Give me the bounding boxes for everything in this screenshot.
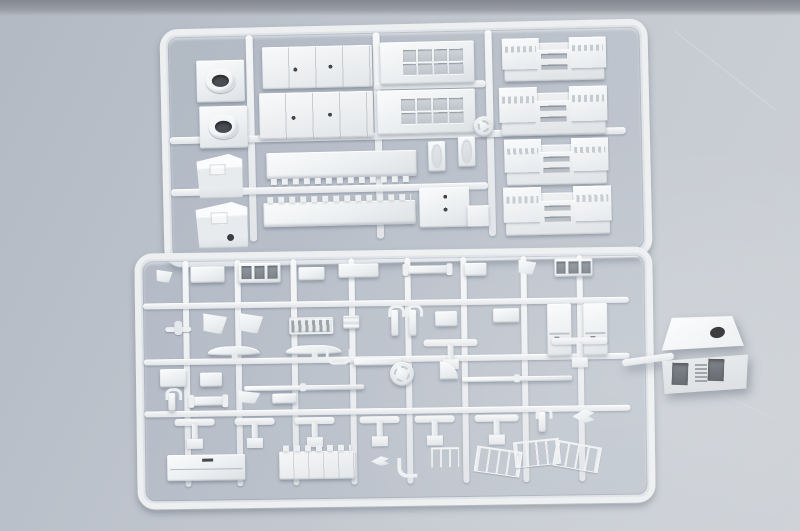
surface-scratch xyxy=(673,30,776,111)
bridge-deck-1-wr xyxy=(569,36,607,68)
deck-fitting xyxy=(190,396,226,406)
funnel-cap-1 xyxy=(196,60,245,103)
window-frame-a xyxy=(238,263,280,284)
hatch-frame-2 xyxy=(458,136,476,166)
mast-tee-2 xyxy=(551,337,607,368)
panel-slab-1 xyxy=(262,45,373,89)
deck-crenellated xyxy=(279,451,355,480)
platform-small-2 xyxy=(493,308,519,322)
pad-box-1 xyxy=(160,369,186,387)
sprue-bottom xyxy=(134,246,656,509)
pad-box-2 xyxy=(200,372,222,386)
bridge-deck-4-wr xyxy=(573,185,612,220)
bridge-deck-2-wl xyxy=(499,87,538,122)
mast-tee-7 xyxy=(415,415,455,446)
photo-scene xyxy=(0,0,800,531)
mast-tee-4-t-pad xyxy=(247,438,263,448)
notched-deck-2 xyxy=(263,200,416,227)
surface-top-edge xyxy=(0,0,800,16)
davit-1 xyxy=(391,310,398,336)
bridge-deck-1-mid xyxy=(537,49,572,78)
mast-tee-6 xyxy=(360,416,400,447)
float-plane xyxy=(165,321,191,335)
bridge-deck-3-wr xyxy=(571,138,609,172)
bridge-deck-2-wr xyxy=(568,86,607,121)
bridge-deck-4 xyxy=(505,191,610,235)
mast-tee-6-t-stem xyxy=(377,421,383,436)
bar-with-caps xyxy=(404,265,450,274)
mast-tee-7-t-stem xyxy=(432,420,438,435)
sprue-top xyxy=(159,18,652,267)
box-small-1 xyxy=(298,267,324,280)
bridge-deck-2-mid xyxy=(535,100,571,132)
bollard-pair xyxy=(272,393,296,403)
fitting-small-2 xyxy=(538,412,545,432)
notched-deck-1 xyxy=(266,150,417,179)
bridge-deck-1 xyxy=(504,41,605,81)
mast-tee-5 xyxy=(295,417,335,448)
pipe-bend xyxy=(397,458,417,478)
bridge-deck-1-wl xyxy=(502,38,540,70)
window-block-2 xyxy=(377,88,476,134)
yardarm-curved-1 xyxy=(208,346,260,356)
bridge-deck-2 xyxy=(501,91,606,135)
mast-tee-3-t-pad xyxy=(187,439,203,449)
mast-tee-7-t-pad xyxy=(427,435,443,445)
window-frame-b-cells xyxy=(557,261,591,273)
deck-plain xyxy=(167,454,245,481)
box-small-3 xyxy=(435,311,457,326)
rail-small xyxy=(431,447,459,467)
mast-tee-3 xyxy=(175,419,215,450)
cube-hatch-window xyxy=(708,359,725,382)
bridge-deck-3-wl xyxy=(504,139,542,173)
mast-tee-4 xyxy=(235,418,275,449)
mast-tee-5-t-stem xyxy=(312,422,318,437)
l-shaped-block xyxy=(419,187,470,228)
platform-small-1 xyxy=(190,266,224,282)
vent-grille xyxy=(289,317,333,335)
mast-tee-2-t-stem xyxy=(577,342,583,357)
grate-small xyxy=(343,315,359,328)
bridge-deck-3-mid xyxy=(539,151,574,181)
window-frame-a-cells xyxy=(241,266,278,280)
loose-part-deckhouse xyxy=(622,312,756,400)
hatch-frame-1 xyxy=(428,141,446,171)
bridge-deck-4-mid xyxy=(540,200,576,232)
u-bracket xyxy=(326,349,352,365)
deckhouse-wedge-1 xyxy=(196,154,243,199)
cube-front-face xyxy=(662,348,748,394)
deckhouse-wedge-2 xyxy=(195,202,248,249)
funnel-cap-2 xyxy=(199,106,248,149)
box-small-2 xyxy=(464,263,486,276)
window-block-1 xyxy=(380,40,475,84)
mast-tee-4-t-stem xyxy=(252,423,258,438)
mast-tee-2-t-pad xyxy=(572,357,588,367)
fitting-small-1 xyxy=(168,393,175,411)
davit-2 xyxy=(409,310,416,336)
mast-tee-3-t-stem xyxy=(192,424,198,439)
mast-tee-1-t-stem xyxy=(448,344,454,359)
deck-crenellated-teeth xyxy=(283,445,351,452)
box-wide-1 xyxy=(338,263,378,278)
bridge-deck-3 xyxy=(506,143,607,185)
railing-span-rail-panel rp2 xyxy=(553,440,602,474)
window-block-1-cells xyxy=(402,49,463,75)
window-frame-b xyxy=(554,258,592,277)
window-block-2-cells xyxy=(401,97,464,124)
mast-tee-8-t-stem xyxy=(494,420,500,435)
mast-tee-6-t-pad xyxy=(372,436,388,446)
panel-slab-2 xyxy=(259,91,374,140)
cube-hatch-window xyxy=(672,362,689,385)
railing-span xyxy=(475,437,602,479)
bridge-deck-4-wl xyxy=(503,187,542,222)
